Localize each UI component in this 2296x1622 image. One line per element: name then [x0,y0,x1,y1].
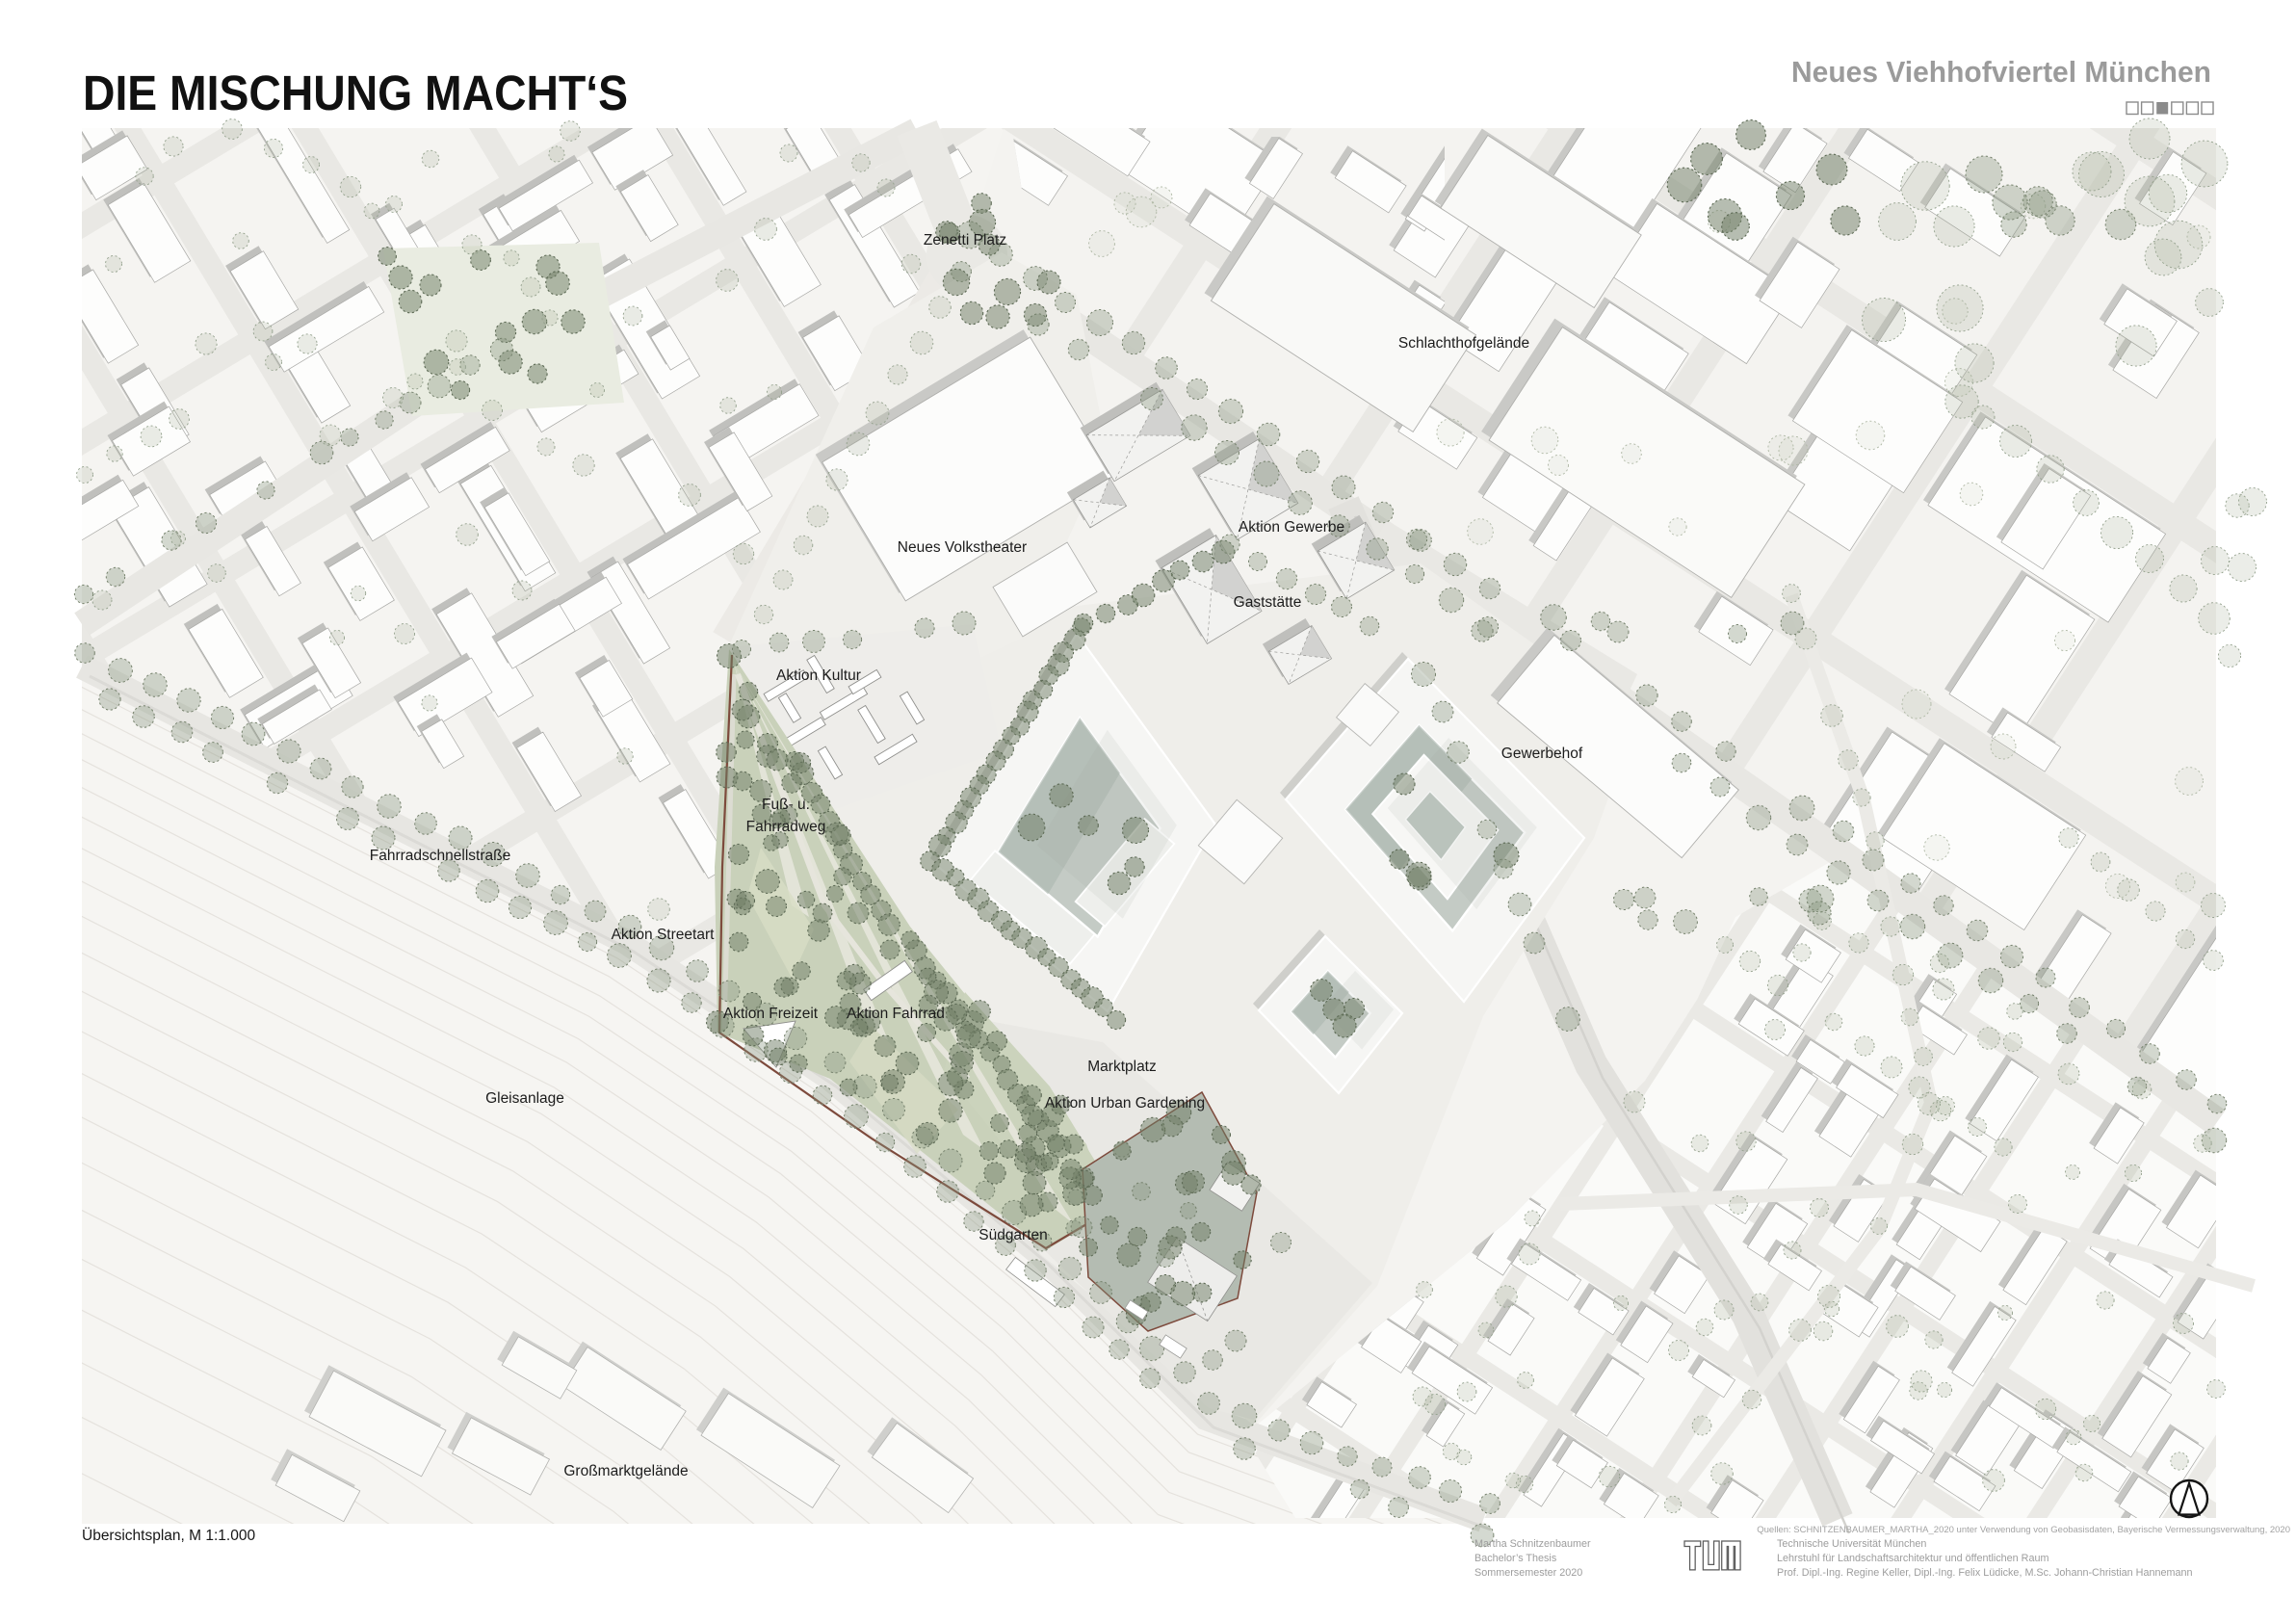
svg-text:Südgarten: Südgarten [978,1227,1048,1243]
svg-text:Fuß- u.: Fuß- u. [762,797,810,813]
svg-text:Zenetti Platz: Zenetti Platz [924,232,1006,249]
svg-text:Martha Schnitzenbaumer: Martha Schnitzenbaumer [1474,1538,1591,1550]
svg-text:Schlachthofgelände: Schlachthofgelände [1398,335,1529,352]
svg-text:Prof. Dipl.-Ing. Regine Keller: Prof. Dipl.-Ing. Regine Keller, Dipl.-In… [1777,1567,2192,1579]
svg-text:Gewerbehof: Gewerbehof [1501,746,1583,762]
svg-text:Aktion Fahrrad: Aktion Fahrrad [847,1006,945,1022]
svg-text:Quellen: SCHNITZENBAUMER_MARTH: Quellen: SCHNITZENBAUMER_MARTHA_2020 unt… [1757,1525,2290,1535]
svg-text:Bachelor’s Thesis: Bachelor’s Thesis [1474,1553,1557,1564]
svg-text:Technische Universität München: Technische Universität München [1777,1538,1926,1550]
svg-text:Aktion Gewerbe: Aktion Gewerbe [1239,519,1344,536]
svg-text:Marktplatz: Marktplatz [1087,1059,1157,1075]
svg-text:Gaststätte: Gaststätte [1234,594,1302,611]
svg-text:Übersichtsplan, M 1:1.000: Übersichtsplan, M 1:1.000 [82,1527,255,1544]
svg-text:Neues Volkstheater: Neues Volkstheater [898,539,1027,556]
svg-text:Gleisanlage: Gleisanlage [485,1090,564,1107]
svg-text:Sommersemester 2020: Sommersemester 2020 [1474,1567,1582,1579]
svg-text:Fahrradschnellstraße: Fahrradschnellstraße [370,848,510,864]
svg-text:Neues Viehhofviertel München: Neues Viehhofviertel München [1791,56,2211,89]
svg-text:Fahrradweg: Fahrradweg [746,819,826,835]
svg-text:DIE MISCHUNG MACHT‘S: DIE MISCHUNG MACHT‘S [83,65,628,120]
svg-text:Aktion Freizeit: Aktion Freizeit [723,1006,819,1022]
svg-text:Großmarktgelände: Großmarktgelände [563,1463,688,1479]
svg-text:Aktion Urban Gardening: Aktion Urban Gardening [1045,1095,1205,1112]
svg-text:Lehrstuhl für Landschaftsarchi: Lehrstuhl für Landschaftsarchitektur und… [1777,1553,2049,1564]
svg-text:Aktion Kultur: Aktion Kultur [776,667,861,684]
svg-text:Aktion Streetart: Aktion Streetart [612,927,716,943]
